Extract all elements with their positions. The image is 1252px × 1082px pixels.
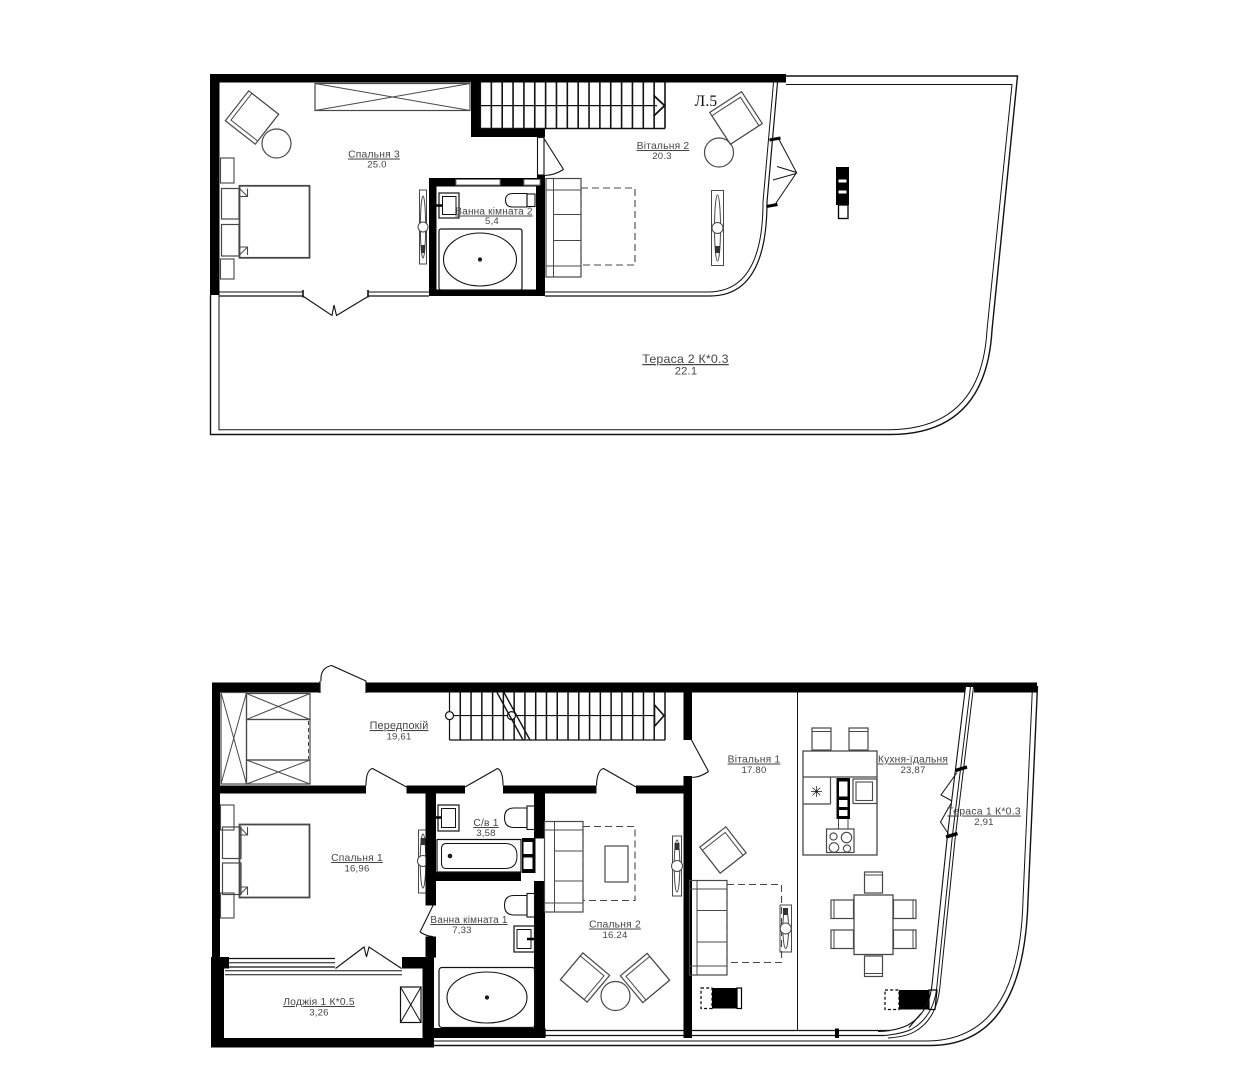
svg-text:17.80: 17.80 (741, 765, 766, 776)
svg-text:Лоджія 1 К*0.5: Лоджія 1 К*0.5 (283, 997, 355, 1008)
svg-text:3,26: 3,26 (309, 1008, 328, 1019)
svg-text:Л.5: Л.5 (695, 93, 718, 110)
svg-text:Тераса 1 К*0.3: Тераса 1 К*0.3 (947, 806, 1021, 818)
svg-text:19,61: 19,61 (386, 732, 411, 743)
svg-text:Спальня 2: Спальня 2 (589, 920, 641, 931)
svg-text:Передпокій: Передпокій (370, 720, 429, 732)
svg-text:3,58: 3,58 (476, 828, 495, 839)
svg-text:16.24: 16.24 (602, 930, 627, 941)
svg-text:Кухня-їдальня: Кухня-їдальня (878, 755, 948, 766)
svg-text:7,33: 7,33 (452, 925, 471, 936)
svg-text:✳: ✳ (810, 784, 823, 801)
svg-text:25.0: 25.0 (367, 160, 386, 171)
svg-text:Спальня 1: Спальня 1 (331, 853, 383, 864)
svg-text:2,91: 2,91 (974, 817, 993, 828)
svg-text:Вітальня 1: Вітальня 1 (728, 755, 781, 766)
svg-text:23,87: 23,87 (900, 765, 925, 776)
svg-text:20.3: 20.3 (652, 151, 671, 162)
svg-text:16,96: 16,96 (344, 864, 369, 875)
svg-text:5,4: 5,4 (485, 216, 499, 227)
svg-text:Тераса 2 К*0.3: Тераса 2 К*0.3 (642, 352, 728, 366)
svg-text:22.1: 22.1 (675, 366, 698, 378)
